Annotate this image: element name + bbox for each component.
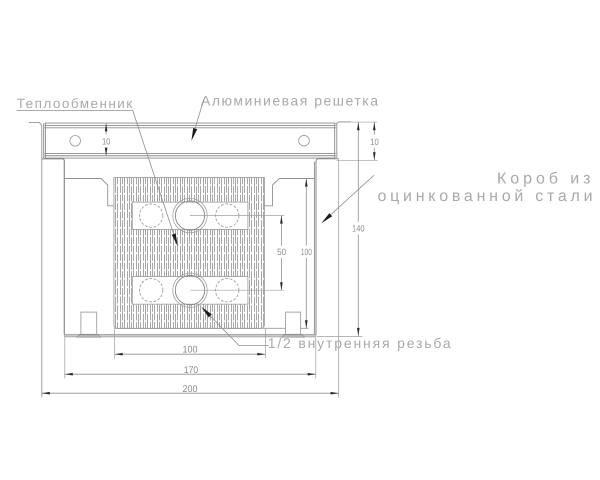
svg-text:оцинкованной стали: оцинкованной стали [378,188,593,205]
svg-text:Короб из: Короб из [497,170,591,187]
svg-text:10: 10 [102,137,111,147]
svg-text:170: 170 [184,365,199,376]
svg-text:Теплообменник: Теплообменник [17,96,133,111]
svg-text:200: 200 [183,384,198,395]
svg-text:100: 100 [183,345,198,356]
svg-text:Алюминиевая решетка: Алюминиевая решетка [201,92,378,108]
svg-text:140: 140 [352,224,365,234]
svg-text:10: 10 [370,137,379,147]
svg-text:100: 100 [301,247,312,257]
svg-text:50: 50 [277,247,286,257]
svg-text:1/2 внутренняя резьба: 1/2 внутренняя резьба [268,335,451,351]
